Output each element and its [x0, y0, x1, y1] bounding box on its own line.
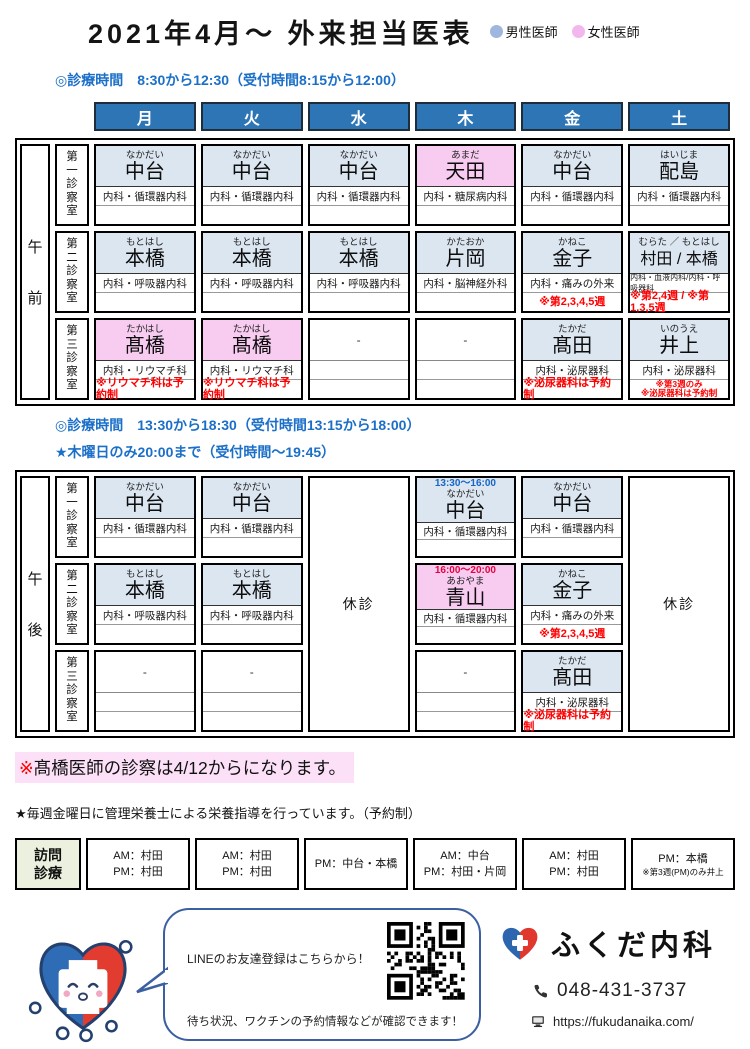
day-header-1: 月 [94, 102, 196, 131]
schedule-note [630, 206, 728, 224]
schedule-cell: 16:00～20:00あおやま青山内科・循環器内科 [415, 563, 517, 645]
room-label-char: 第 [66, 325, 78, 339]
afternoon-column-土: 休診 [628, 476, 730, 732]
room-label-char: 一 [66, 497, 78, 511]
doctor-name: 中台 [445, 501, 485, 522]
schedule-note: ※リウマチ科は予約制 [203, 380, 301, 398]
doctor-name-area: - [203, 652, 301, 693]
room-label-char: 診 [66, 178, 78, 192]
home-visit-cell-月: AM：村田PM：村田 [86, 838, 190, 890]
slot-time-range: 16:00～20:00 [435, 565, 496, 576]
line-info-text: 待ち状況、ワクチンの予約情報などが確認できます！ [187, 1013, 465, 1029]
male-doctor-label: 男性医師 [506, 22, 558, 41]
department-label: 内科・痛みの外来 [523, 274, 621, 293]
legend-female: 女性医師 [572, 22, 640, 41]
room-label-char: 診 [66, 684, 78, 698]
schedule-cell: はいじま配島内科・循環器内科 [628, 144, 730, 226]
doctor-name: 中台 [232, 494, 272, 515]
day-header-row: 月火水木金土 [15, 100, 735, 133]
doctor-furigana: なかだい [233, 150, 271, 162]
doctor-name: 髙田 [552, 336, 592, 357]
doctor-name: 本橋 [232, 249, 272, 270]
doctor-name-area: なかだい中台 [203, 478, 301, 519]
schedule-note [96, 206, 194, 224]
department-label [417, 693, 515, 712]
schedule-note: ※泌尿器科は予約制 [523, 380, 621, 398]
doctor-furigana: なかだい [553, 482, 591, 494]
schedule-cell: なかだい中台内科・循環器内科 [201, 476, 303, 558]
doctor-furigana: なかだい [340, 150, 378, 162]
legend-male: 男性医師 [490, 22, 558, 41]
afternoon-hours-note: ★木曜日のみ20:00まで（受付時間～19:45） [55, 443, 750, 462]
doctor-name-area: 13:30～16:00なかだい中台 [417, 478, 515, 523]
room-label-char: 診 [66, 352, 78, 366]
doctor-name-area: たかはし髙橋 [203, 320, 301, 361]
schedule-note-line: ※第2,3,4,5週 [539, 628, 605, 640]
department-label: 内科・循環器内科 [630, 187, 728, 206]
empty-slot-mark: - [463, 665, 467, 679]
home-visit-line: PM：本橋 [658, 851, 708, 867]
slot-time-range: 13:30～16:00 [435, 478, 496, 489]
room-label-char: 二 [66, 252, 78, 266]
url-row: https://fukudanaika.com/ [531, 1014, 740, 1029]
empty-slot-mark: - [143, 665, 147, 679]
bubble-top: LINEのお友達登録はこちらから！ [187, 922, 465, 1005]
schedule-note: ※第2,3,4,5週 [523, 293, 621, 311]
department-label: 内科・呼吸器内科 [96, 606, 194, 625]
clinic-logo-heart-icon [499, 924, 541, 962]
doctor-name: 天田 [445, 162, 485, 183]
doctor-furigana: あまだ [451, 150, 480, 162]
doctor-name: 配島 [659, 162, 699, 183]
morning-session-label: 午前 [20, 144, 50, 400]
doctor-name: 村田 / 本橋 [640, 249, 717, 270]
department-label: 内科・循環器内科 [96, 187, 194, 206]
home-visit-line: PM：村田 [113, 864, 163, 880]
closed-day-cell: 休診 [308, 476, 410, 732]
department-label: 内科・循環器内科 [203, 187, 301, 206]
department-label: 内科・泌尿器科 [630, 361, 728, 380]
afternoon-column-木: 13:30～16:00なかだい中台内科・循環器内科16:00～20:00あおやま… [415, 476, 517, 732]
schedule-cell: あまだ天田内科・糖尿病内科 [415, 144, 517, 226]
clinic-name: ふくだ内科 [551, 922, 716, 964]
doctor-name: 本橋 [339, 249, 379, 270]
doctor-name: 髙橋 [232, 336, 272, 357]
doctor-name-area: もとはし本橋 [310, 233, 408, 274]
closed-day-cell: 休診 [628, 476, 730, 732]
doctor-furigana: もとはし [126, 569, 164, 581]
schedule-cell: たかはし髙橋内科・リウマチ科※リウマチ科は予約制 [94, 318, 196, 400]
room-label-2: 第二診察室 [55, 563, 89, 645]
doctor-furigana: たかだ [558, 324, 587, 336]
schedule-note: ※第3週のみ※泌尿器科は予約制 [630, 380, 728, 398]
schedule-note [310, 380, 408, 398]
notice-text: 髙橋医師の診察は4/12からになります。 [34, 758, 346, 778]
schedule-cell: なかだい中台内科・循環器内科 [201, 144, 303, 226]
clinic-mascot-icon [22, 926, 147, 1049]
doctor-name-area: もとはし本橋 [203, 233, 301, 274]
afternoon-schedule-table: 午後第一診察室第二診察室第三診察室なかだい中台内科・循環器内科もとはし本橋内科・… [15, 470, 735, 738]
department-label: 内科・痛みの外来 [523, 606, 621, 625]
day-header-6: 土 [628, 102, 730, 131]
doctor-name-area: かねこ金子 [523, 233, 621, 274]
afternoon-column-月: なかだい中台内科・循環器内科もとはし本橋内科・呼吸器内科- [94, 476, 196, 732]
department-label [310, 361, 408, 380]
afternoon-column-火: なかだい中台内科・循環器内科もとはし本橋内科・呼吸器内科- [201, 476, 303, 732]
doctor-furigana: なかだい [126, 482, 164, 494]
doctor-name-area: - [417, 320, 515, 361]
department-label: 内科・呼吸器内科 [310, 274, 408, 293]
notice-mark: ※ [19, 758, 34, 778]
doctor-furigana: たかはし [233, 324, 271, 336]
doctor-furigana: なかだい [553, 150, 591, 162]
doctor-legend: 男性医師 女性医師 [490, 22, 640, 41]
afternoon-session-label: 午後 [20, 476, 50, 732]
phone-row: 048-431-3737 [533, 980, 740, 1002]
doctor-furigana: もとはし [340, 237, 378, 249]
empty-slot-mark: - [357, 333, 361, 347]
home-visit-line: ※第3週(PM)のみ井上 [642, 867, 723, 878]
schedule-cell: もとはし本橋内科・呼吸器内科 [308, 231, 410, 313]
doctor-furigana: かねこ [558, 569, 587, 581]
doctor-name-area: なかだい中台 [523, 146, 621, 187]
session-char: 午 [27, 236, 42, 257]
male-doctor-dot-icon [490, 25, 503, 38]
schedule-cell: かねこ金子内科・痛みの外来※第2,3,4,5週 [521, 231, 623, 313]
schedule-cell: むらた ／ もとはし村田 / 本橋内科・血液内科/内科・呼吸器科※第2,4週 /… [628, 231, 730, 313]
footer: LINEのお友達登録はこちらから！ 待ち状況、ワクチンの予約情報などが確認できま… [22, 908, 740, 1049]
schedule-note-line: ※リウマチ科は予約制 [96, 377, 194, 401]
room-label-char: 診 [66, 265, 78, 279]
schedule-note-line: ※第2,3,4,5週 [539, 296, 605, 308]
home-visit-line: AM：村田 [113, 848, 163, 864]
schedule-cell: もとはし本橋内科・呼吸器内科 [94, 563, 196, 645]
schedule-note [417, 293, 515, 311]
doctor-name-area: - [417, 652, 515, 693]
home-visit-label: 訪問診療 [15, 838, 81, 890]
doctor-furigana: たかだ [558, 656, 587, 668]
room-label-char: 診 [66, 597, 78, 611]
schedule-note [523, 538, 621, 556]
morning-column-金: なかだい中台内科・循環器内科かねこ金子内科・痛みの外来※第2,3,4,5週たかだ… [521, 144, 623, 400]
clinic-name-row: ふくだ内科 [499, 922, 740, 964]
home-visit-label-line: 診療 [34, 864, 62, 882]
doctor-name: 井上 [659, 336, 699, 357]
line-speech-bubble: LINEのお友達登録はこちらから！ 待ち状況、ワクチンの予約情報などが確認できま… [163, 908, 481, 1041]
room-label-char: 察 [66, 698, 78, 712]
room-label-char: 察 [66, 366, 78, 380]
schedule-cell: - [308, 318, 410, 400]
schedule-note: ※第2,4週 / ※第1,3,5週 [630, 293, 728, 311]
doctor-name-area: はいじま配島 [630, 146, 728, 187]
department-label: 内科・循環器内科 [96, 519, 194, 538]
home-visit-row: 訪問診療AM：村田PM：村田AM：村田PM：村田PM：中台・本橋AM：中台PM：… [15, 838, 735, 890]
department-label: 内科・循環器内科 [310, 187, 408, 206]
room-label-char: 察 [66, 611, 78, 625]
doctor-name: 中台 [339, 162, 379, 183]
schedule-note [417, 540, 515, 556]
schedule-note [417, 712, 515, 730]
schedule-note [203, 206, 301, 224]
home-visit-line: PM：村田 [222, 864, 272, 880]
clinic-phone: 048-431-3737 [557, 980, 687, 1002]
schedule-note [310, 206, 408, 224]
doctor-name-area: もとはし本橋 [96, 565, 194, 606]
doctor-name: 髙田 [552, 668, 592, 689]
department-label: 内科・呼吸器内科 [203, 606, 301, 625]
schedule-note [417, 380, 515, 398]
home-visit-label-line: 訪問 [34, 846, 62, 864]
department-label [417, 361, 515, 380]
room-label-3: 第三診察室 [55, 650, 89, 732]
schedule-cell: もとはし本橋内科・呼吸器内科 [201, 563, 303, 645]
session-char: 前 [27, 287, 42, 308]
doctor-name-area: たかだ髙田 [523, 320, 621, 361]
room-label-char: 一 [66, 165, 78, 179]
department-label: 内科・糖尿病内科 [417, 187, 515, 206]
doctor-name: 金子 [552, 581, 592, 602]
doctor-name-area: むらた ／ もとはし村田 / 本橋 [630, 233, 728, 274]
day-header-5: 金 [521, 102, 623, 131]
room-label-3: 第三診察室 [55, 318, 89, 400]
doctor-name: 中台 [552, 494, 592, 515]
room-label-1: 第一診察室 [55, 476, 89, 558]
department-label: 内科・循環器内科 [523, 187, 621, 206]
room-label-char: 察 [66, 524, 78, 538]
department-label [203, 693, 301, 712]
doctor-name-area: なかだい中台 [310, 146, 408, 187]
schedule-cell: いのうえ井上内科・泌尿器科※第3週のみ※泌尿器科は予約制 [628, 318, 730, 400]
schedule-cell: たかはし髙橋内科・リウマチ科※リウマチ科は予約制 [201, 318, 303, 400]
room-label-char: 察 [66, 279, 78, 293]
doctor-name-area: いのうえ井上 [630, 320, 728, 361]
doctor-name: 中台 [552, 162, 592, 183]
schedule-page: 2021年4月～ 外来担当医表 男性医師 女性医師 ◎診療時間 8:30から12… [0, 12, 750, 1049]
page-title: 2021年4月～ 外来担当医表 [88, 12, 474, 51]
room-label-char: 室 [66, 711, 78, 725]
doctor-name: 青山 [445, 588, 485, 609]
room-label-char: 二 [66, 584, 78, 598]
schedule-note [203, 625, 301, 643]
schedule-note [96, 712, 194, 730]
doctor-name-area: - [310, 320, 408, 361]
day-header-2: 火 [201, 102, 303, 131]
doctor-name: 本橋 [232, 581, 272, 602]
phone-icon [533, 983, 549, 999]
schedule-cell: - [415, 318, 517, 400]
schedule-note [203, 712, 301, 730]
morning-column-火: なかだい中台内科・循環器内科もとはし本橋内科・呼吸器内科たかはし髙橋内科・リウマ… [201, 144, 303, 400]
department-label: 内科・呼吸器内科 [96, 274, 194, 293]
schedule-note-line: ※泌尿器科は予約制 [523, 377, 621, 401]
home-visit-line: PM：中台・本橋 [315, 856, 398, 872]
morning-hours-label: ◎診療時間 8:30から12:30（受付時間8:15から12:00） [55, 71, 750, 90]
schedule-note [417, 206, 515, 224]
doctor-name: 中台 [125, 494, 165, 515]
doctor-name-area: もとはし本橋 [203, 565, 301, 606]
day-header-3: 水 [308, 102, 410, 131]
doctor-name-area: 16:00～20:00あおやま青山 [417, 565, 515, 610]
home-visit-cell-水: PM：中台・本橋 [304, 838, 408, 890]
schedule-note-line: ※第2,4週 / ※第1,3,5週 [630, 290, 728, 314]
schedule-cell: なかだい中台内科・循環器内科 [94, 144, 196, 226]
home-visit-line: PM：村田・片岡 [424, 864, 507, 880]
doctor-name: 金子 [552, 249, 592, 270]
department-label: 内科・循環器内科 [417, 610, 515, 627]
department-label: 内科・呼吸器内科 [203, 274, 301, 293]
speech-bubble-tail [136, 966, 168, 996]
doctor-name-area: かねこ金子 [523, 565, 621, 606]
room-label-char: 第 [66, 570, 78, 584]
doctor-name-area: なかだい中台 [96, 478, 194, 519]
room-label-char: 診 [66, 510, 78, 524]
room-label-char: 第 [66, 657, 78, 671]
morning-column-水: なかだい中台内科・循環器内科もとはし本橋内科・呼吸器内科- [308, 144, 410, 400]
schedule-note [523, 206, 621, 224]
morning-schedule-table: 午前第一診察室第二診察室第三診察室なかだい中台内科・循環器内科もとはし本橋内科・… [15, 138, 735, 406]
empty-slot-mark: - [250, 665, 254, 679]
afternoon-hours-label: ◎診療時間 13:30から18:30（受付時間13:15から18:00） [55, 416, 750, 435]
doctor-name-area: なかだい中台 [523, 478, 621, 519]
home-visit-line: AM：村田 [549, 848, 599, 864]
home-visit-line: PM：村田 [549, 864, 599, 880]
doctor-furigana: かたおか [446, 237, 484, 249]
doctor-name: 中台 [232, 162, 272, 183]
room-label-char: 第 [66, 151, 78, 165]
department-label: 内科・循環器内科 [417, 523, 515, 540]
doctor-name: 本橋 [125, 249, 165, 270]
morning-column-土: はいじま配島内科・循環器内科むらた ／ もとはし村田 / 本橋内科・血液内科/内… [628, 144, 730, 400]
department-label: 内科・脳神経外科 [417, 274, 515, 293]
department-label: 内科・循環器内科 [523, 519, 621, 538]
room-label-char: 三 [66, 339, 78, 353]
home-visit-cell-土: PM：本橋※第3週(PM)のみ井上 [631, 838, 735, 890]
schedule-note [417, 627, 515, 643]
department-label: 内科・循環器内科 [203, 519, 301, 538]
empty-slot-mark: - [463, 333, 467, 347]
doctor-name: 中台 [125, 162, 165, 183]
schedule-note: ※泌尿器科は予約制 [523, 712, 621, 730]
room-label-char: 室 [66, 205, 78, 219]
nutrition-notice: ★毎週金曜日に管理栄養士による栄養指導を行っています。（予約制） [15, 803, 750, 822]
clinic-url: https://fukudanaika.com/ [553, 1014, 694, 1029]
room-label-char: 室 [66, 624, 78, 638]
doctor-furigana: なかだい [233, 482, 271, 494]
session-char: 後 [27, 619, 42, 640]
doctor-name: 片岡 [445, 249, 485, 270]
afternoon-column-水: 休診 [308, 476, 410, 732]
room-label-char: 第 [66, 483, 78, 497]
doctor-name-area: なかだい中台 [96, 146, 194, 187]
room-label-char: 第 [66, 238, 78, 252]
morning-column-木: あまだ天田内科・糖尿病内科かたおか片岡内科・脳神経外科- [415, 144, 517, 400]
doctor-name: 本橋 [125, 581, 165, 602]
line-qr-code [387, 922, 465, 1005]
schedule-cell: なかだい中台内科・循環器内科 [521, 144, 623, 226]
doctor-name-area: かたおか片岡 [417, 233, 515, 274]
schedule-note-line: ※泌尿器科は予約制 [641, 389, 717, 398]
doctor-furigana: もとはし [233, 237, 271, 249]
room-label-2: 第二診察室 [55, 231, 89, 313]
schedule-note: ※リウマチ科は予約制 [96, 380, 194, 398]
line-register-text: LINEのお友達登録はこちらから！ [187, 922, 387, 967]
doctor-name-area: あまだ天田 [417, 146, 515, 187]
schedule-cell: かねこ金子内科・痛みの外来※第2,3,4,5週 [521, 563, 623, 645]
home-visit-cell-金: AM：村田PM：村田 [522, 838, 626, 890]
doctor-name-area: もとはし本橋 [96, 233, 194, 274]
schedule-cell: たかだ髙田内科・泌尿器科※泌尿器科は予約制 [521, 650, 623, 732]
schedule-cell: たかだ髙田内科・泌尿器科※泌尿器科は予約制 [521, 318, 623, 400]
schedule-note-line: ※泌尿器科は予約制 [523, 709, 621, 733]
doctor-furigana: もとはし [233, 569, 271, 581]
department-label [96, 693, 194, 712]
home-visit-line: AM：中台 [440, 848, 490, 864]
schedule-note [96, 625, 194, 643]
schedule-note [203, 293, 301, 311]
schedule-note: ※第2,3,4,5週 [523, 625, 621, 643]
room-label-char: 室 [66, 292, 78, 306]
female-doctor-label: 女性医師 [588, 22, 640, 41]
room-label-char: 室 [66, 537, 78, 551]
female-doctor-dot-icon [572, 25, 585, 38]
afternoon-column-金: なかだい中台内科・循環器内科かねこ金子内科・痛みの外来※第2,3,4,5週たかだ… [521, 476, 623, 732]
doctor-name-area: たかはし髙橋 [96, 320, 194, 361]
session-char: 午 [27, 568, 42, 589]
schedule-cell: - [415, 650, 517, 732]
doctor-furigana: かねこ [558, 237, 587, 249]
schedule-note-line: ※リウマチ科は予約制 [203, 377, 301, 401]
doctor-furigana: もとはし [126, 237, 164, 249]
schedule-cell: なかだい中台内科・循環器内科 [521, 476, 623, 558]
home-visit-cell-木: AM：中台PM：村田・片岡 [413, 838, 517, 890]
doctor-name-area: たかだ髙田 [523, 652, 621, 693]
room-label-char: 室 [66, 379, 78, 393]
schedule-note [203, 538, 301, 556]
home-visit-line: AM：村田 [222, 848, 272, 864]
schedule-cell: - [201, 650, 303, 732]
doctor-furigana: たかはし [126, 324, 164, 336]
takahashi-notice-chip: ※髙橋医師の診察は4/12からになります。 [15, 752, 354, 783]
schedule-cell: かたおか片岡内科・脳神経外科 [415, 231, 517, 313]
schedule-cell: もとはし本橋内科・呼吸器内科 [201, 231, 303, 313]
doctor-furigana: なかだい [126, 150, 164, 162]
doctor-furigana: むらた ／ もとはし [639, 237, 720, 249]
schedule-cell: なかだい中台内科・循環器内科 [94, 476, 196, 558]
doctor-name-area: なかだい中台 [203, 146, 301, 187]
website-icon [531, 1015, 545, 1028]
schedule-cell: もとはし本橋内科・呼吸器内科 [94, 231, 196, 313]
home-visit-cell-火: AM：村田PM：村田 [195, 838, 299, 890]
clinic-info: ふくだ内科 048-431-3737 https://fukudanaika.c… [481, 922, 740, 1029]
room-label-char: 三 [66, 671, 78, 685]
doctor-name: 髙橋 [125, 336, 165, 357]
room-label-1: 第一診察室 [55, 144, 89, 226]
schedule-note [96, 538, 194, 556]
schedule-cell: なかだい中台内科・循環器内科 [308, 144, 410, 226]
doctor-furigana: いのうえ [660, 324, 698, 336]
room-label-char: 察 [66, 192, 78, 206]
schedule-note [310, 293, 408, 311]
title-row: 2021年4月～ 外来担当医表 男性医師 女性医師 [88, 12, 735, 51]
doctor-name-area: - [96, 652, 194, 693]
takahashi-notice: ※髙橋医師の診察は4/12からになります。 [15, 752, 750, 783]
morning-column-月: なかだい中台内科・循環器内科もとはし本橋内科・呼吸器内科たかはし髙橋内科・リウマ… [94, 144, 196, 400]
schedule-cell: 13:30～16:00なかだい中台内科・循環器内科 [415, 476, 517, 558]
schedule-cell: - [94, 650, 196, 732]
day-header-4: 木 [415, 102, 517, 131]
schedule-note [96, 293, 194, 311]
doctor-furigana: はいじま [660, 150, 698, 162]
